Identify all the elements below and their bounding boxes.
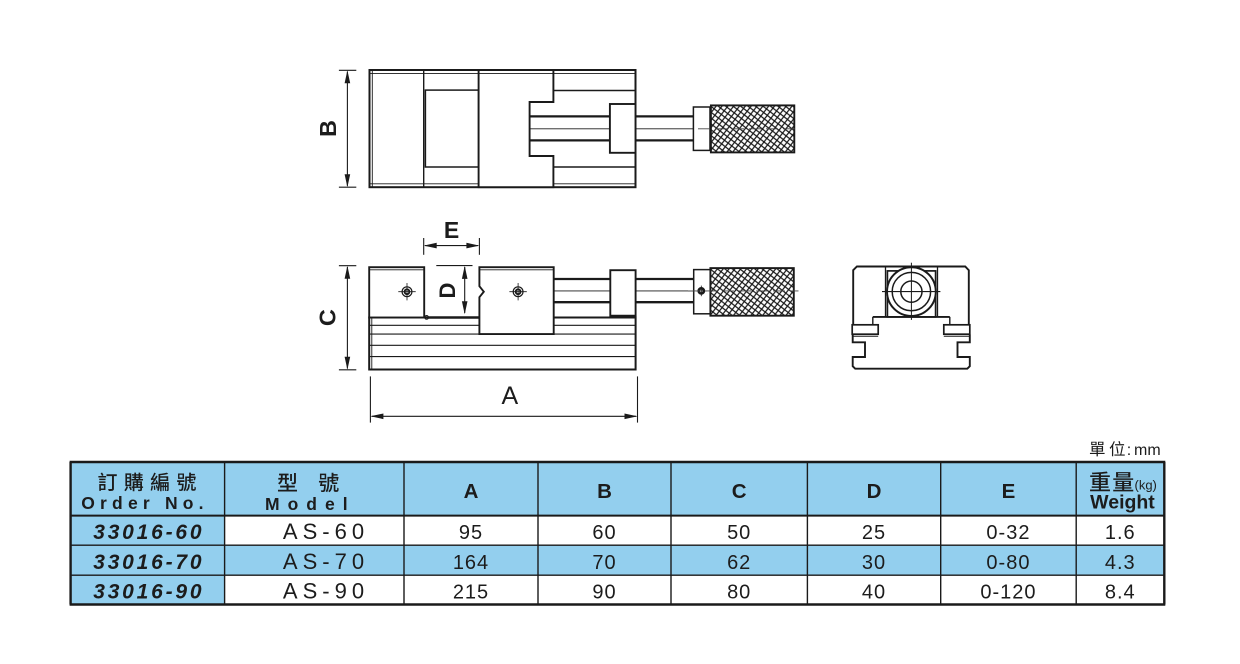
svg-text:mm: mm [1134, 442, 1161, 459]
svg-text:40: 40 [862, 582, 886, 604]
svg-text:AS-70: AS-70 [283, 549, 369, 574]
svg-text:(kg): (kg) [1135, 478, 1157, 493]
svg-text:C: C [732, 480, 747, 503]
svg-text:215: 215 [453, 582, 489, 604]
svg-text:80: 80 [727, 582, 751, 604]
svg-text:8.4: 8.4 [1105, 582, 1136, 604]
svg-text:Model: Model [265, 494, 356, 514]
svg-text:4.3: 4.3 [1105, 552, 1136, 574]
svg-text:A: A [464, 480, 479, 503]
svg-text:90: 90 [592, 582, 616, 604]
svg-text:E: E [1002, 480, 1016, 503]
svg-text:0-120: 0-120 [980, 582, 1036, 604]
svg-text:B: B [597, 480, 612, 503]
svg-text:95: 95 [459, 522, 483, 544]
svg-text:164: 164 [453, 552, 489, 574]
svg-text:33016-60: 33016-60 [93, 521, 204, 544]
svg-text:0-80: 0-80 [986, 552, 1030, 574]
svg-text:25: 25 [862, 522, 886, 544]
svg-text:AS-60: AS-60 [283, 519, 369, 544]
svg-text:50: 50 [727, 522, 751, 544]
svg-text:Weight: Weight [1090, 492, 1155, 514]
svg-text::: : [1127, 442, 1131, 459]
svg-text:D: D [435, 283, 460, 299]
svg-text:30: 30 [862, 552, 886, 574]
svg-text:Order No.: Order No. [81, 493, 209, 513]
svg-text:60: 60 [592, 522, 616, 544]
svg-text:B: B [315, 120, 341, 137]
svg-text:AS-90: AS-90 [283, 579, 369, 604]
svg-text:62: 62 [727, 552, 751, 574]
svg-text:E: E [444, 217, 459, 243]
svg-text:D: D [867, 480, 882, 503]
svg-text:C: C [315, 309, 341, 326]
svg-text:33016-70: 33016-70 [93, 551, 204, 574]
svg-text:A: A [502, 382, 519, 410]
svg-text:0-32: 0-32 [986, 522, 1030, 544]
svg-text:33016-90: 33016-90 [93, 581, 204, 604]
svg-text:1.6: 1.6 [1105, 522, 1136, 544]
svg-text:70: 70 [592, 552, 616, 574]
